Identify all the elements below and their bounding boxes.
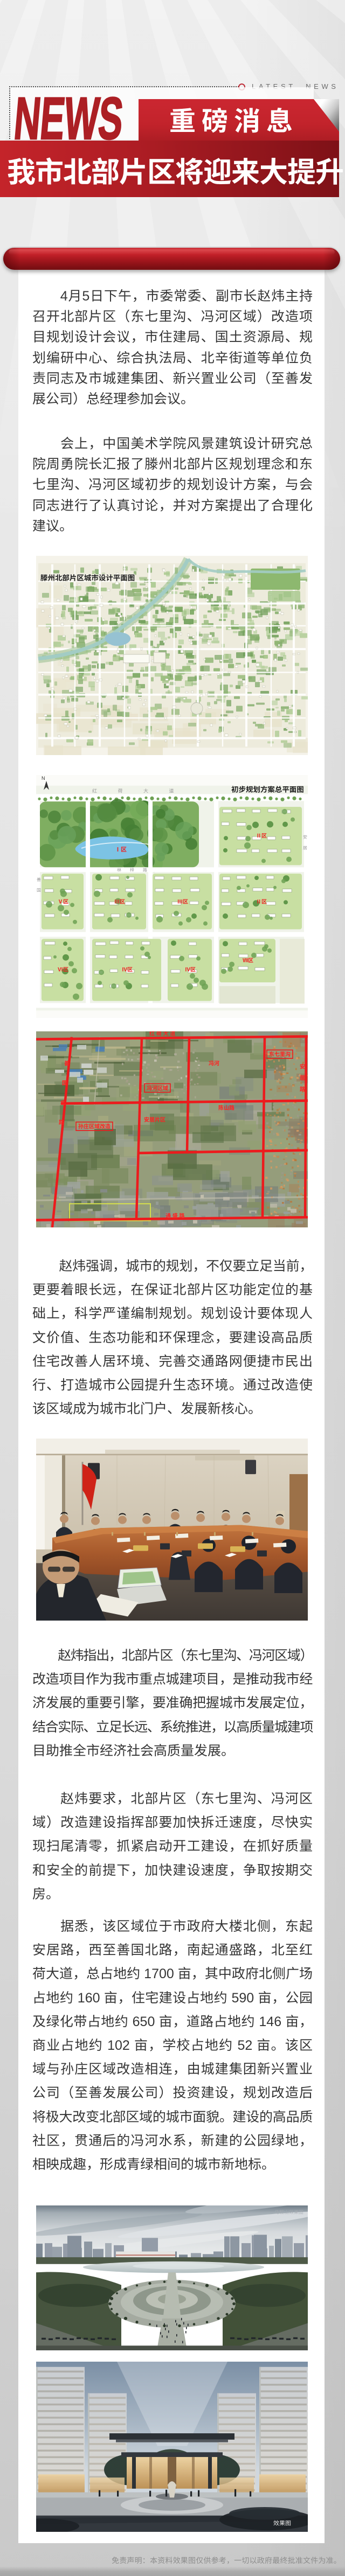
svg-text:Ⅵ区: Ⅵ区 (58, 965, 68, 973)
svg-text:陈山路: 陈山路 (218, 1103, 235, 1111)
svg-text:Ⅱ区: Ⅱ区 (256, 831, 267, 839)
svg-text:居: 居 (303, 845, 307, 851)
svg-text:国: 国 (62, 1078, 67, 1086)
svg-text:居: 居 (300, 1073, 305, 1081)
svg-text:Ⅶ区: Ⅶ区 (243, 956, 253, 964)
svg-text:国: 国 (37, 888, 41, 893)
svg-text:安: 安 (300, 1062, 305, 1070)
svg-text:冯河区域: 冯河区域 (147, 1084, 169, 1092)
svg-text:Ⅰ区: Ⅰ区 (115, 845, 127, 854)
svg-text:Ⅲ区: Ⅲ区 (114, 897, 125, 905)
svg-text:通 盛 路: 通 盛 路 (165, 1211, 185, 1219)
svg-text:滕州北部片区城市设计平面图: 滕州北部片区城市设计平面图 (40, 571, 135, 582)
svg-text:Ⅱ区: Ⅱ区 (256, 897, 267, 905)
svg-text:Ⅴ区: Ⅴ区 (58, 897, 68, 905)
svg-text:善: 善 (37, 877, 41, 883)
svg-text:路: 路 (59, 1118, 65, 1126)
svg-text:效果图: 效果图 (273, 2518, 291, 2527)
svg-text:冯河: 冯河 (209, 1058, 219, 1066)
svg-text:红 荷 大 道: 红 荷 大 道 (149, 1031, 175, 1037)
svg-text:东七里沟: 东七里沟 (269, 1050, 291, 1058)
svg-text:善: 善 (64, 1058, 70, 1066)
svg-text:Ⅳ区: Ⅳ区 (122, 965, 133, 973)
svg-text:北: 北 (60, 1098, 66, 1106)
svg-text:安居片区: 安居片区 (144, 1115, 165, 1123)
svg-text:红 荷 大 道: 红 荷 大 道 (92, 787, 183, 794)
svg-text:路: 路 (300, 1085, 306, 1093)
svg-text:孙庄区域改造: 孙庄区域改造 (78, 1122, 111, 1130)
svg-text:Ⅲ区: Ⅲ区 (177, 897, 188, 905)
svg-text:安: 安 (303, 834, 307, 840)
svg-text:马鞍山效果图: 马鞍山效果图 (274, 2209, 303, 2216)
svg-text:Ⅳ区: Ⅳ区 (185, 965, 196, 973)
svg-text:N: N (42, 775, 45, 781)
svg-text:初步规划方案总平面图: 初步规划方案总平面图 (231, 784, 304, 794)
